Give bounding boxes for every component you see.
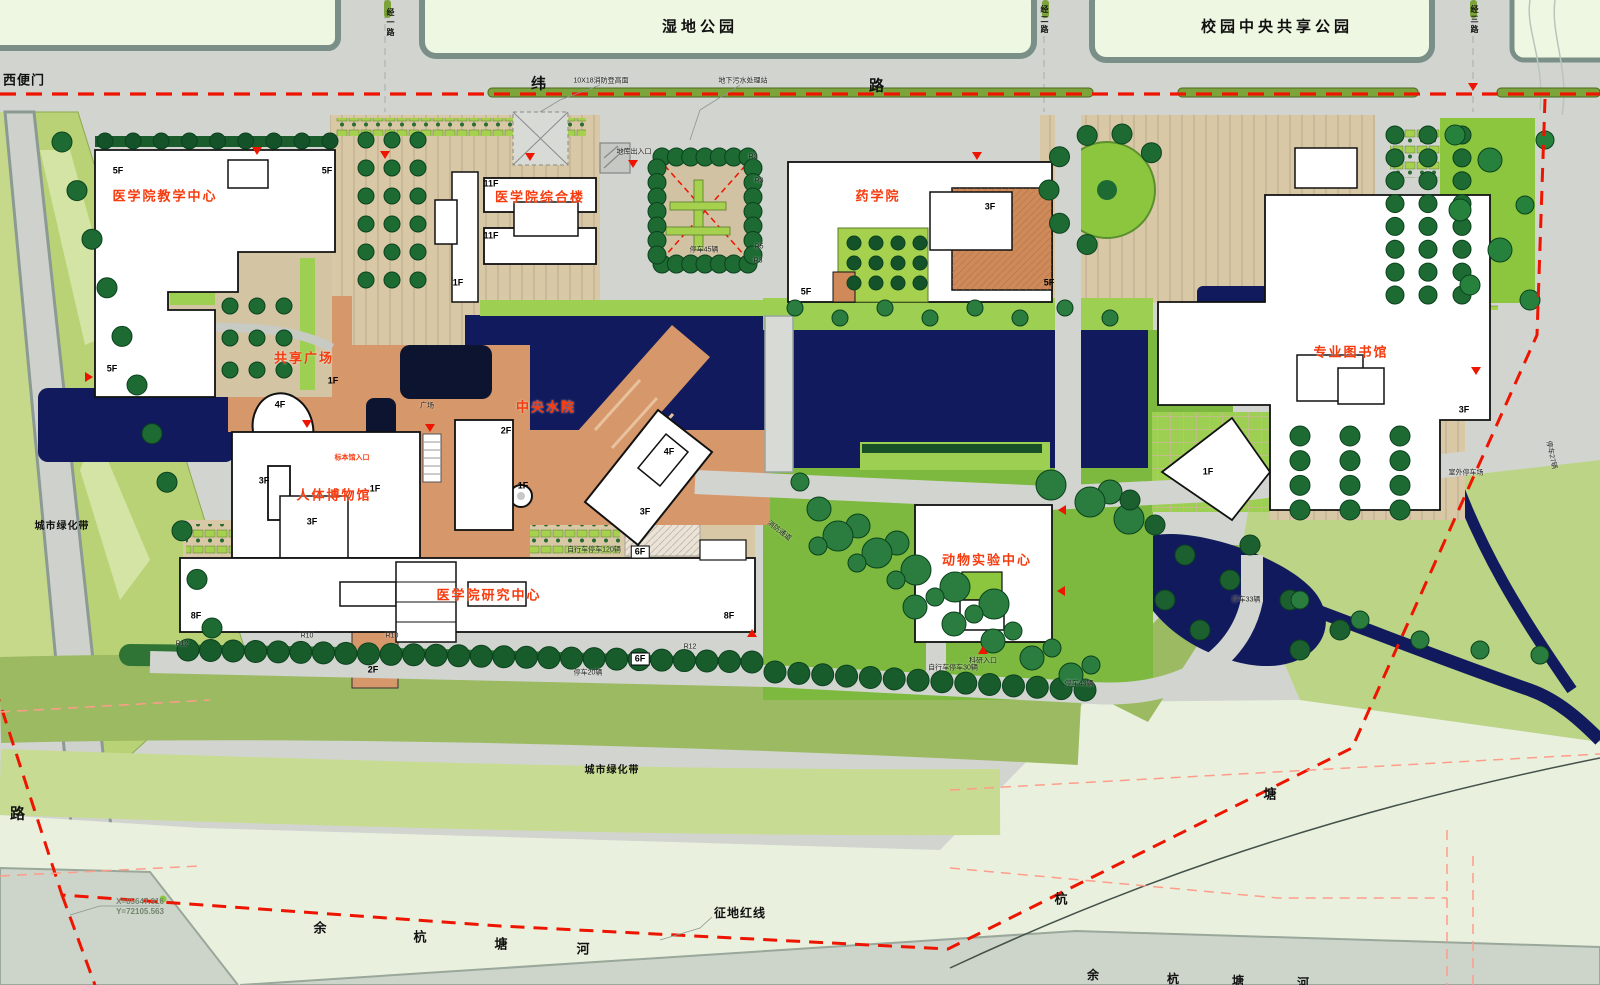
site-plan-canvas: 医学院教学中心医学院综合楼药学院专业图书馆共享广场中央水院人体博物馆医学院研究中… — [0, 0, 1600, 985]
building-animal-lab-center — [915, 505, 1052, 642]
water-bridge — [765, 316, 793, 472]
survey-point-dot — [160, 896, 167, 903]
site-plan-drawing — [0, 0, 1600, 985]
building-2f — [455, 420, 513, 530]
